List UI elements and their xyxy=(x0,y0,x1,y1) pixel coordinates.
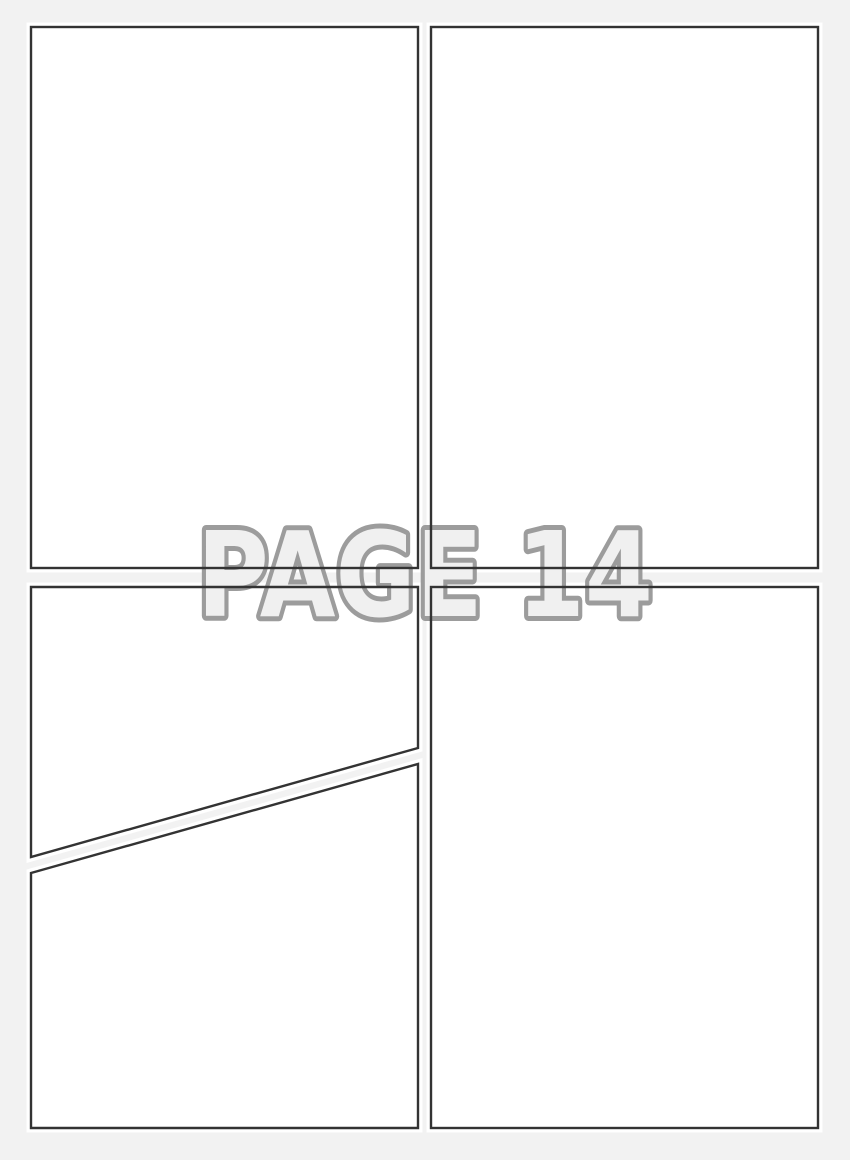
panel-5 xyxy=(431,587,818,1128)
comic-page-canvas: PAGE 14 xyxy=(0,0,850,1160)
page-number-watermark: PAGE 14 xyxy=(197,506,653,644)
panel-2 xyxy=(431,27,818,568)
comic-page-template: PAGE 14 xyxy=(0,0,850,1160)
panel-1 xyxy=(31,27,418,568)
